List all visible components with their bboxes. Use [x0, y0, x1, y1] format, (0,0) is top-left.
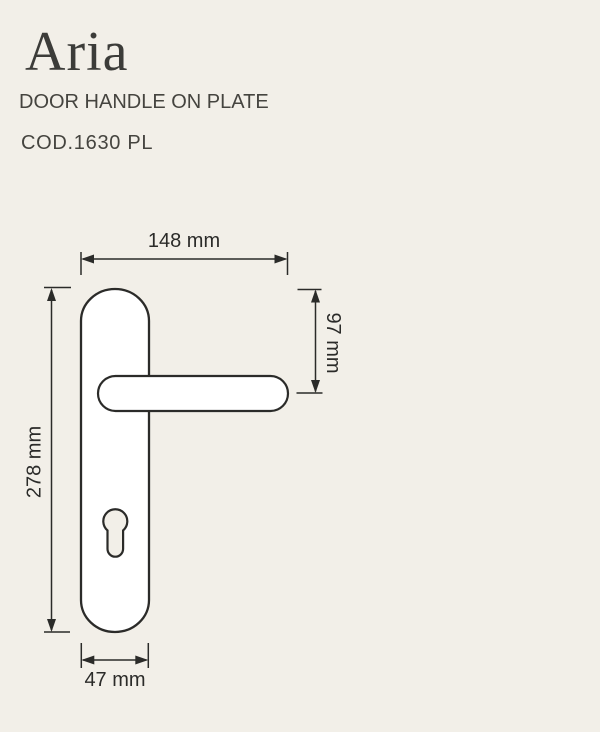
svg-text:278 mm: 278 mm: [24, 426, 46, 498]
svg-text:47 mm: 47 mm: [84, 669, 145, 691]
svg-text:148 mm: 148 mm: [148, 230, 220, 252]
svg-text:97 mm: 97 mm: [322, 312, 344, 373]
